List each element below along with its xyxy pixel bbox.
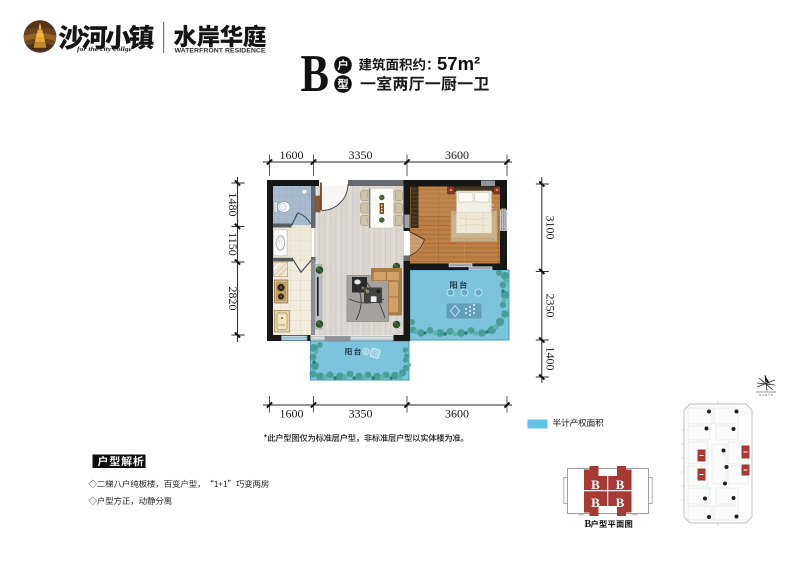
svg-text:3350: 3350 (349, 407, 373, 421)
svg-text:3600: 3600 (445, 148, 469, 162)
svg-text:B: B (585, 519, 592, 530)
svg-text:1480: 1480 (226, 193, 240, 217)
svg-text:1400: 1400 (544, 347, 558, 371)
svg-text:B: B (616, 477, 625, 492)
svg-text:WATERFRONT RESIDENCE: WATERFRONT RESIDENCE (175, 48, 267, 55)
svg-text:3100: 3100 (544, 216, 558, 240)
svg-text:for the city collge: for the city collge (77, 47, 132, 53)
svg-text:2820: 2820 (226, 287, 240, 311)
svg-text:3600: 3600 (445, 407, 469, 421)
svg-text:B: B (301, 45, 330, 103)
svg-text:B: B (591, 495, 600, 510)
svg-text:57m²: 57m² (437, 53, 480, 74)
svg-text:1600: 1600 (280, 407, 304, 421)
svg-text:1150: 1150 (226, 232, 240, 256)
svg-text:N O R T H: N O R T H (759, 393, 773, 397)
svg-text:3350: 3350 (349, 148, 373, 162)
svg-text:2350: 2350 (544, 294, 558, 318)
svg-text:B: B (616, 495, 625, 510)
svg-text:1600: 1600 (280, 148, 304, 162)
svg-text:B: B (591, 477, 600, 492)
